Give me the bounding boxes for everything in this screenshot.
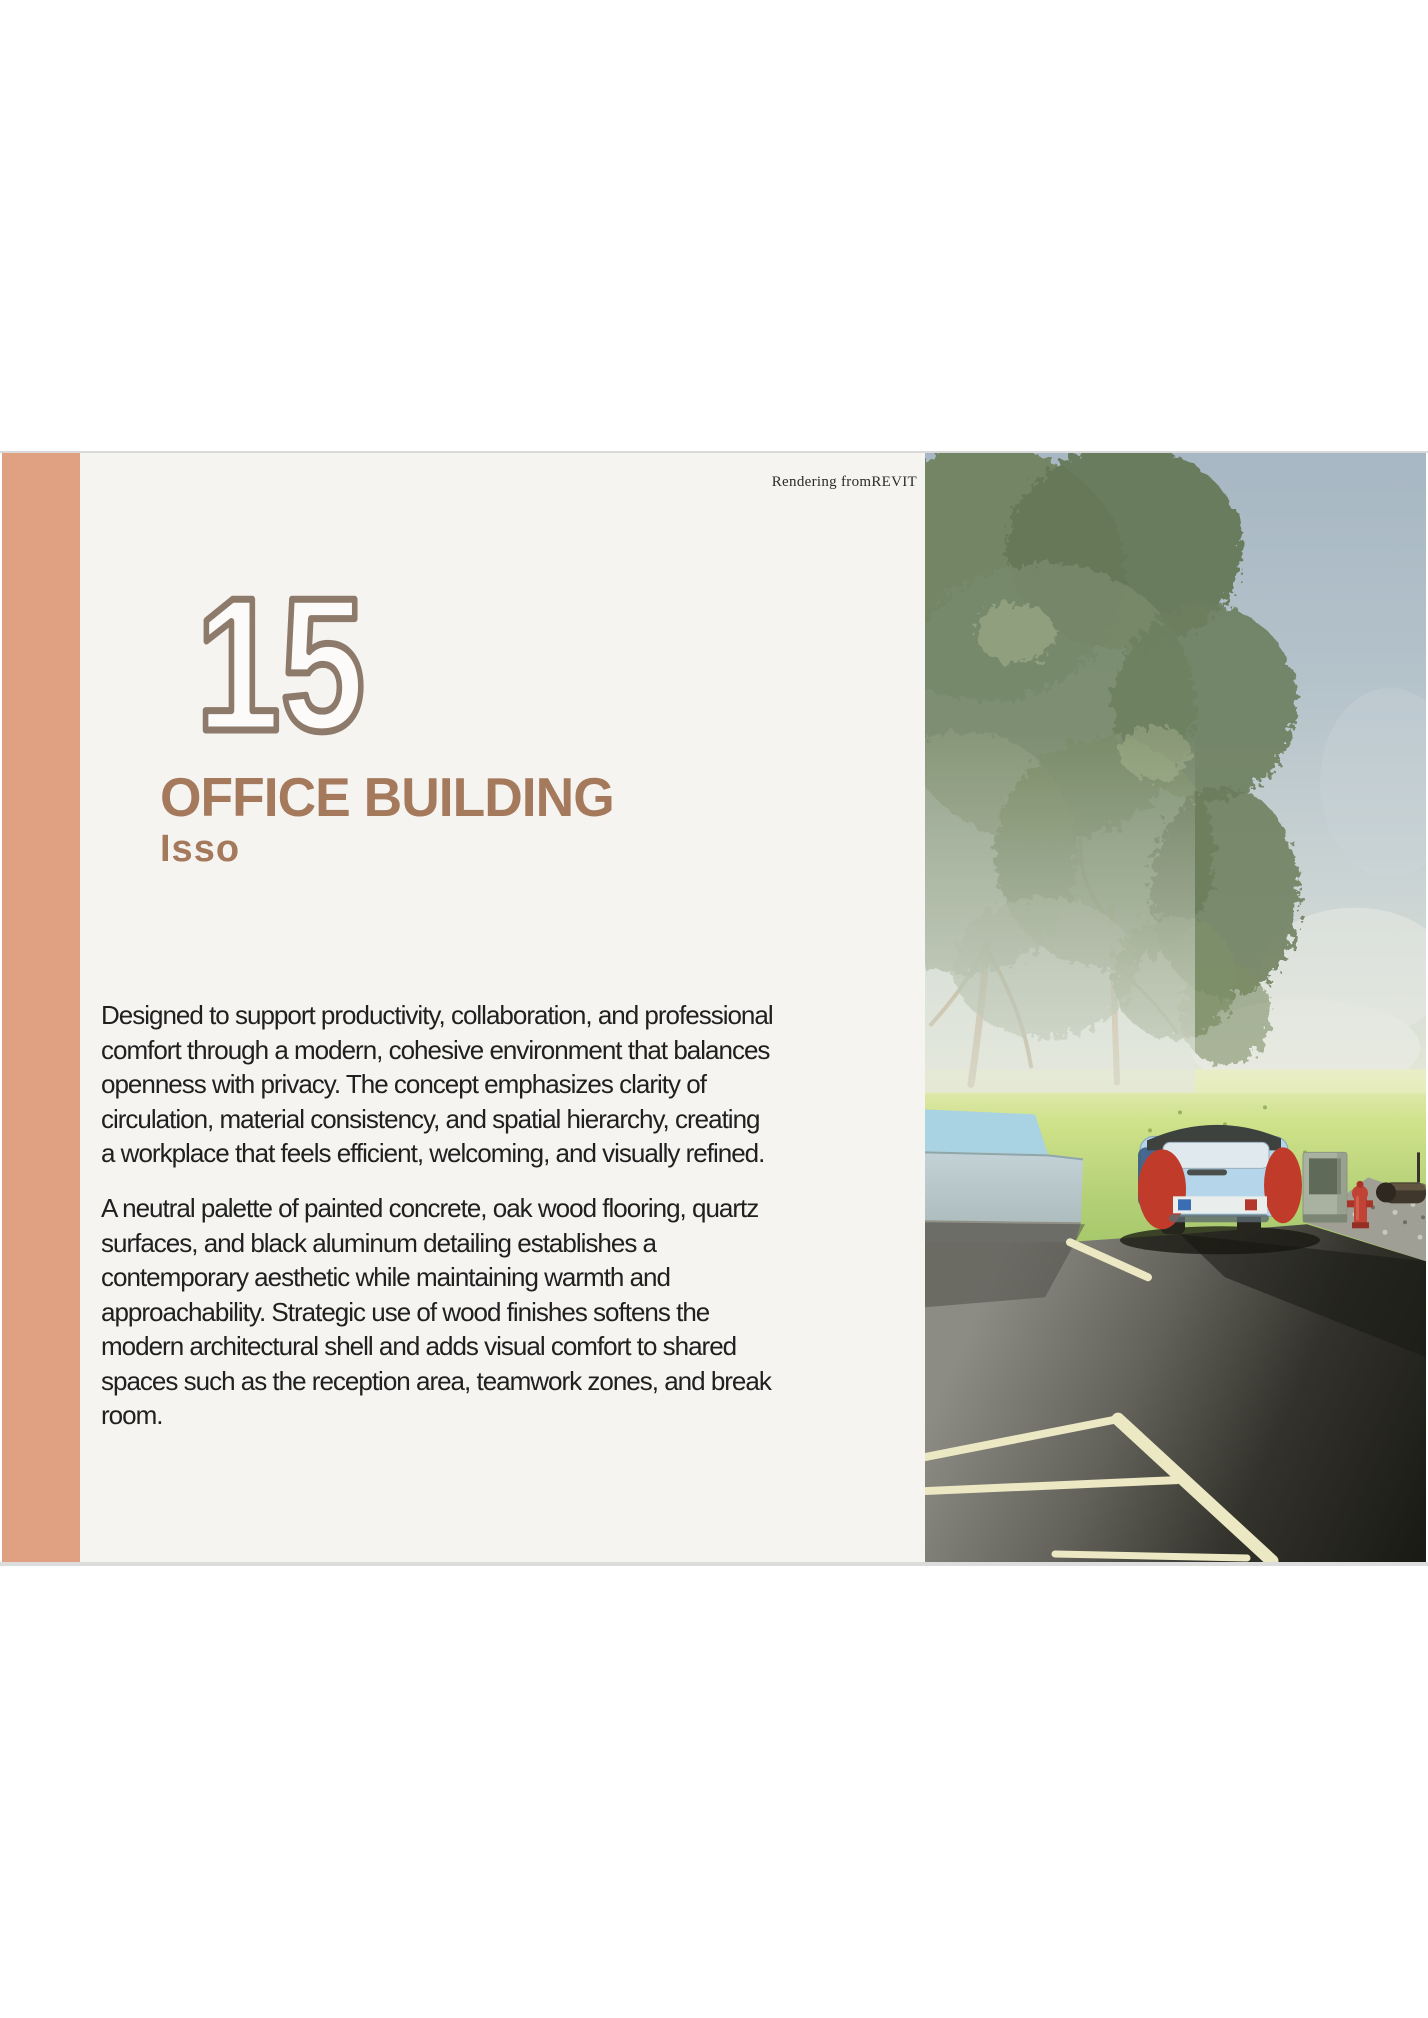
car-plate-blue	[1178, 1199, 1191, 1210]
description-paragraph-2: A neutral palette of painted concrete, o…	[101, 1191, 921, 1433]
description-paragraph-1: Designed to support productivity, collab…	[101, 998, 921, 1171]
tree-haze	[925, 733, 1195, 1093]
car-fender-right	[1264, 1147, 1302, 1223]
project-subtitle: Isso	[160, 830, 240, 868]
rendering-image	[925, 453, 1426, 1562]
rendering-canvas	[925, 453, 1426, 1562]
accent-bar	[2, 453, 80, 1562]
car-shadow	[1120, 1226, 1320, 1254]
rendering-credit: Rendering fromREVIT	[772, 474, 917, 491]
car-plate-red	[1245, 1199, 1257, 1210]
car-badge	[1187, 1169, 1227, 1175]
info-panel: Rendering fromREVIT 15 OFFICE BUILDING I…	[80, 453, 925, 1562]
project-title: OFFICE BUILDING	[160, 770, 614, 825]
trash-bin	[1303, 1152, 1347, 1222]
chapter-number: 15	[192, 585, 452, 755]
portfolio-page: Rendering fromREVIT 15 OFFICE BUILDING I…	[0, 0, 1428, 2018]
chapter-number-text: 15	[196, 559, 365, 771]
car-bumper	[1169, 1214, 1269, 1222]
parking-lot	[925, 1222, 1426, 1562]
project-section: Rendering fromREVIT 15 OFFICE BUILDING I…	[0, 451, 1428, 1566]
